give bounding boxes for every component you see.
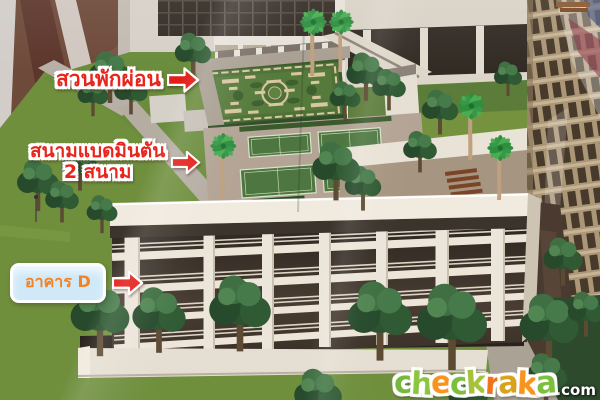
scale-model-scene: [0, 0, 600, 400]
building-d: [78, 193, 541, 378]
model-photo: สวนพักผ่อน สนามแบดมินตัน 2 สนาม อาคาร D …: [0, 0, 600, 400]
